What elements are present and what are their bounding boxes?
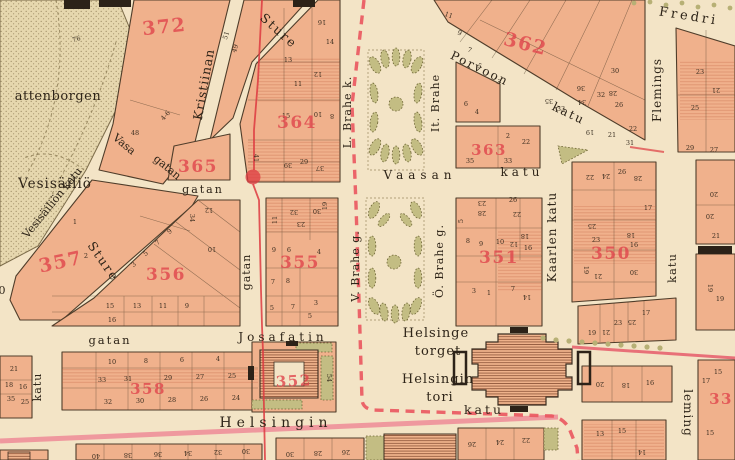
lot-number: 8 xyxy=(144,357,148,365)
square-helsinge: Helsinge xyxy=(403,326,469,341)
lot-number: 14 xyxy=(326,38,334,46)
lot-number: 28 xyxy=(609,89,617,97)
lot-number: 24 xyxy=(496,438,504,446)
block-number-365: 365 xyxy=(178,157,218,177)
street-gatan-mid: gatan xyxy=(182,183,224,196)
lot-number: 15 xyxy=(106,302,114,310)
lot-number: 16 xyxy=(19,383,27,391)
lot-number: 8 xyxy=(330,112,334,120)
lot-number: 32 xyxy=(104,398,112,406)
street-flemings: Flemings xyxy=(650,58,664,122)
lot-number: 11 xyxy=(271,216,279,224)
lot-number: 16 xyxy=(524,244,532,252)
reservoir-label-1: attenborgen xyxy=(15,89,102,104)
street-leming: leming xyxy=(681,389,695,437)
lot-number: 8 xyxy=(286,277,290,285)
lot-number: 17 xyxy=(702,377,710,385)
lot-number: 21 xyxy=(10,365,18,373)
lot-number: 28 xyxy=(634,174,642,182)
lot-number: 27 xyxy=(196,373,204,381)
street-kaarlen-katu: Kaarlen katu xyxy=(545,192,559,282)
lot-number: 18 xyxy=(521,232,529,240)
lot-number: 18 xyxy=(627,231,635,239)
street-josafatin: Josafatin xyxy=(236,330,327,344)
lot-number: 22 xyxy=(586,173,594,181)
street-katu-west: katu xyxy=(31,373,44,402)
lot-number: 54 xyxy=(325,374,333,382)
block-number-355: 355 xyxy=(280,253,320,273)
lot-number: 35 xyxy=(545,97,553,105)
lot-number: 21 xyxy=(594,272,602,280)
lot-number: 23 xyxy=(614,319,622,327)
street-o-brahe: Ö. Brahe g. xyxy=(432,224,446,298)
lot-number: 18 xyxy=(5,381,13,389)
lot-number: 21 xyxy=(712,232,720,240)
lot-number: 41 xyxy=(252,154,260,162)
lot-number: 4 xyxy=(475,108,479,116)
lot-number: 19 xyxy=(582,266,590,274)
lot-number: 8 xyxy=(466,237,470,245)
lot-number: 40 xyxy=(92,452,100,460)
lot-number: 9 xyxy=(272,246,276,254)
lot-number: 17 xyxy=(644,204,652,212)
lot-number: 33 xyxy=(557,105,565,113)
lot-number: 28 xyxy=(168,396,176,404)
lot-number: 23 xyxy=(297,220,305,228)
lot-number: 34 xyxy=(578,98,586,106)
lot-number: 32 xyxy=(597,91,605,99)
lot-number: 26 xyxy=(509,196,517,204)
lot-number: 29 xyxy=(686,144,694,152)
lot-number: 7 xyxy=(291,303,295,311)
street-gatan-vertical: gatan xyxy=(240,254,253,291)
street-l-brahe: L. Brahe k. xyxy=(341,76,354,148)
lot-number: 48 xyxy=(131,129,139,137)
lot-number: 26 xyxy=(468,440,476,448)
lot-number: 35 xyxy=(7,395,15,403)
lot-number: 19 xyxy=(321,202,329,210)
lot-number: 10 xyxy=(108,358,116,366)
lot-number: 28 xyxy=(478,209,486,217)
lot-number: 36 xyxy=(154,450,162,458)
lot-number: 12 xyxy=(314,70,322,78)
street-vaasan-katu: katu xyxy=(501,165,544,179)
lot-number: 10 xyxy=(496,238,504,246)
historical-city-map: attenborgen Vesisäiliö Vesisäiliön katu … xyxy=(0,0,735,460)
lot-number: 21 xyxy=(602,328,610,336)
lot-number: 26 xyxy=(615,101,623,109)
street-vaasan: Vaasan xyxy=(383,168,457,182)
corner-zero-label: 0 xyxy=(0,284,6,297)
lot-number: 20 xyxy=(710,190,718,198)
lot-number: 32 xyxy=(214,448,222,456)
lot-number: 38 xyxy=(124,451,132,459)
street-v-brahe: V. Brahe g. xyxy=(349,230,362,303)
lot-number: 16 xyxy=(318,18,326,26)
lot-number: 23 xyxy=(478,199,486,207)
lot-number: 18 xyxy=(622,381,630,389)
lot-number: 6 xyxy=(180,356,184,364)
block-350-south-row xyxy=(578,298,676,344)
lot-number: 19 xyxy=(586,128,594,136)
lot-number: 26 xyxy=(618,168,626,176)
lot-number: 34 xyxy=(184,449,192,457)
lot-number: 5 xyxy=(270,304,274,312)
block-number-372: 372 xyxy=(141,14,187,40)
lot-number: 33 xyxy=(98,376,106,384)
lot-number: 24 xyxy=(232,394,240,402)
lot-number: 6 xyxy=(464,100,468,108)
lot-number: 13 xyxy=(596,430,604,438)
lot-number: 25 xyxy=(21,398,29,406)
block-number-right-edge: 33 xyxy=(709,390,733,408)
lot-number: 26 xyxy=(342,448,350,456)
lot-number: 25 xyxy=(691,104,699,112)
tram-stop-disc xyxy=(246,170,261,185)
lot-number: 30 xyxy=(630,268,638,276)
lot-number: 13 xyxy=(133,302,141,310)
lot-number: 4 xyxy=(216,355,220,363)
lot-number: 15 xyxy=(714,368,722,376)
lot-number: 1 xyxy=(73,218,77,226)
street-fleming-katu: katu xyxy=(665,253,679,283)
lot-number: 30 xyxy=(136,397,144,405)
lot-number: 3 xyxy=(314,299,318,307)
lot-number: 27 xyxy=(710,146,718,154)
lot-number: 30 xyxy=(611,67,619,75)
lot-number: 22 xyxy=(629,125,637,133)
lot-number: 28 xyxy=(314,449,322,457)
lot-number: 10 xyxy=(208,245,216,253)
block-number-352: 352 xyxy=(275,371,312,391)
lot-number: 37 xyxy=(316,164,324,172)
lot-number: 5 xyxy=(308,312,312,320)
block-number-350: 350 xyxy=(591,244,631,264)
lot-number: 23 xyxy=(592,236,600,244)
lot-number: 22 xyxy=(522,138,530,146)
lot-number: 26 xyxy=(200,395,208,403)
block-number-364: 364 xyxy=(277,113,317,133)
lot-number: 7 xyxy=(511,285,515,293)
lot-number: 39 xyxy=(284,161,292,169)
lot-number: 1 xyxy=(487,289,491,297)
lot-number: 19 xyxy=(706,284,714,292)
lot-number: 2 xyxy=(84,252,88,260)
lot-number: 7 xyxy=(271,278,275,286)
block-number-351: 351 xyxy=(479,248,519,268)
lot-number: 5 xyxy=(457,219,465,223)
lot-number: 25 xyxy=(628,318,636,326)
lot-number: 20 xyxy=(706,212,714,220)
square-torget: torget xyxy=(415,344,462,359)
lot-number: 16 xyxy=(646,379,654,387)
lot-number: 21 xyxy=(608,131,616,139)
lot-number: 11 xyxy=(159,302,167,310)
lot-number: 19 xyxy=(716,295,724,303)
lot-number: 32 xyxy=(290,208,298,216)
street-helsingin-katu: katu xyxy=(464,402,504,417)
lot-number: 21 xyxy=(712,86,720,94)
block-number-356: 356 xyxy=(146,265,186,285)
square-tori: tori xyxy=(426,390,453,405)
lot-number: 25 xyxy=(588,222,596,230)
street-gatan-west: gatan xyxy=(88,333,131,347)
lot-number: 14 xyxy=(638,448,646,456)
street-helsingin: Helsingin xyxy=(219,415,332,431)
lot-number: 16 xyxy=(630,241,638,249)
block-right-mid-2 xyxy=(696,254,735,330)
lot-number: 30 xyxy=(313,207,321,215)
lot-number: 15 xyxy=(618,427,626,435)
lot-number: 36 xyxy=(577,84,585,92)
square-helsingin: Helsingin xyxy=(402,372,474,387)
map-page: { "colors": { "paper":"#f3e4c6","block":… xyxy=(0,0,735,460)
lot-number: 2 xyxy=(506,132,510,140)
lot-number: 13 xyxy=(284,56,292,64)
lot-number: 14 xyxy=(523,293,531,301)
lot-number: 34 xyxy=(188,214,196,222)
lot-number: 31 xyxy=(626,139,634,147)
lot-number: 17 xyxy=(642,309,650,317)
lot-number: 24 xyxy=(602,172,610,180)
block-number-363: 363 xyxy=(471,141,507,159)
lot-number: 9 xyxy=(185,302,189,310)
lot-number: 30 xyxy=(286,450,294,458)
lot-number: 19 xyxy=(588,329,596,337)
lot-number: 20 xyxy=(596,380,604,388)
lot-number: 6 xyxy=(479,239,483,247)
lot-number: 16 xyxy=(108,316,116,324)
lot-number: 22 xyxy=(513,210,521,218)
lot-number: 12 xyxy=(510,240,518,248)
lot-number: 3 xyxy=(472,287,476,295)
lot-number: 25 xyxy=(228,372,236,380)
lot-number: 15 xyxy=(706,429,714,437)
lot-number: 29 xyxy=(300,158,308,166)
lot-number: 23 xyxy=(696,68,704,76)
block-number-358: 358 xyxy=(130,380,166,398)
street-it-brahe: It. Brahe xyxy=(429,74,442,132)
lot-number: 22 xyxy=(522,436,530,444)
lot-number: 11 xyxy=(294,80,302,88)
lot-number: 12 xyxy=(205,206,213,214)
lot-number: 30 xyxy=(242,447,250,455)
